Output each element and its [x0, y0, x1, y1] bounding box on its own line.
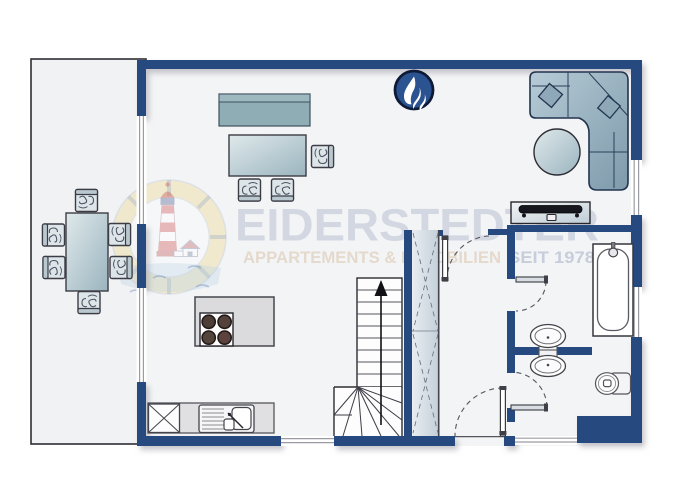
svg-text:SEIT 1978: SEIT 1978 — [508, 248, 595, 267]
svg-text:APPARTEMENTS & IMMOBILIEN: APPARTEMENTS & IMMOBILIEN — [243, 248, 501, 267]
